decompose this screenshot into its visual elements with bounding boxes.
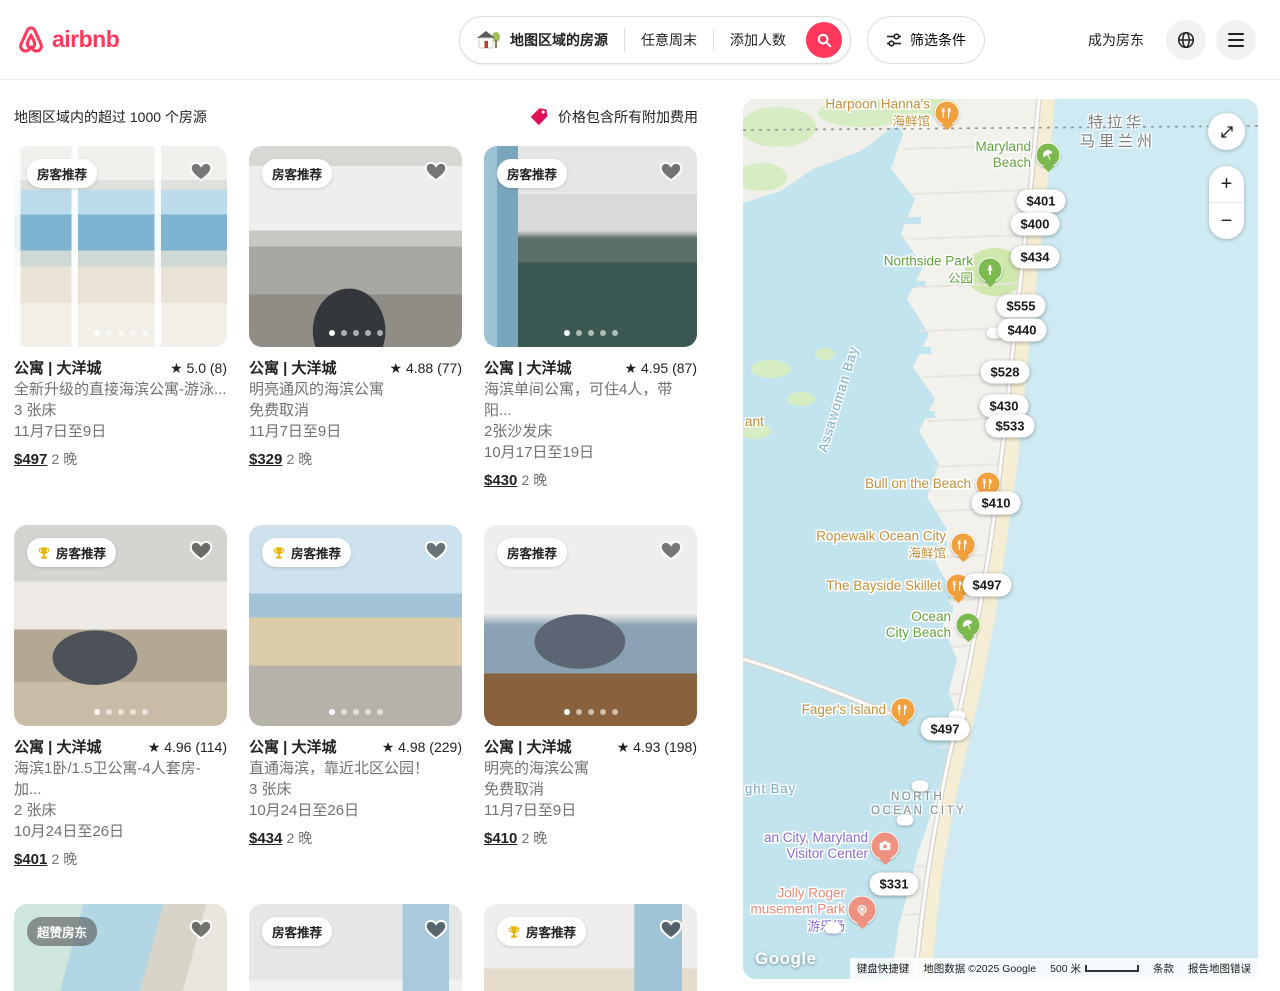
magnifier-icon — [817, 33, 832, 48]
listing-title: 公寓 | 大洋城 — [484, 358, 572, 379]
map-panel[interactable]: 特拉华马里兰州Assawoman Bayantght BayNORTHOCEAN… — [743, 99, 1258, 979]
map-poi-label: Bull on the Beach — [865, 476, 971, 492]
map-price-pin[interactable]: $497 — [921, 718, 970, 741]
listing-price: $430 2 晚 — [484, 470, 697, 491]
listing-description: 明亮的海滨公寓 — [484, 758, 697, 779]
listing-rating: ★ 4.93 (198) — [617, 737, 697, 758]
listing-card[interactable]: 房客推荐公寓 | 大洋城★ 4.93 (198)明亮的海滨公寓免费取消11月7日… — [484, 525, 697, 870]
heart-icon — [658, 916, 684, 942]
google-logo: Google — [755, 949, 817, 969]
search-dates-segment[interactable]: 任意周末 — [625, 30, 713, 50]
filters-button[interactable]: 筛选条件 — [867, 16, 985, 64]
heart-icon — [188, 158, 214, 184]
hamburger-icon — [1228, 33, 1244, 47]
top-nav: airbnb 地图区域的房源 任意周末 添加人数 — [0, 0, 1280, 80]
heart-icon — [658, 537, 684, 563]
restaurant-icon — [956, 538, 971, 553]
listing-meta: 公寓 | 大洋城★ 5.0 (8)全新升级的直接海滨公寓-游泳...3 张床11… — [14, 347, 227, 470]
guest-favorite-badge: 房客推荐 — [497, 917, 586, 946]
listing-photo[interactable]: 房客推荐 — [484, 146, 697, 347]
heart-icon — [423, 916, 449, 942]
map-poi-sublabel: 海鲜馆 — [825, 114, 930, 130]
superhost-badge: 超赞房东 — [27, 917, 97, 946]
wishlist-heart-button[interactable] — [421, 157, 451, 187]
listing-meta: 公寓 | 大洋城★ 4.98 (229)直通海滨，靠近北区公园！3 张床10月2… — [249, 726, 462, 849]
wishlist-heart-button[interactable] — [186, 536, 216, 566]
search-bar[interactable]: 地图区域的房源 任意周末 添加人数 — [459, 16, 851, 64]
expand-icon — [1219, 124, 1235, 140]
listing-description: 全新升级的直接海滨公寓-游泳... — [14, 379, 227, 400]
cards-grid: 房客推荐公寓 | 大洋城★ 5.0 (8)全新升级的直接海滨公寓-游泳...3 … — [14, 146, 698, 991]
listing-beds: 3 张床 — [14, 400, 227, 421]
map-expand-button[interactable] — [1208, 113, 1245, 150]
listing-title: 公寓 | 大洋城 — [14, 358, 102, 379]
map-poi-ferris-marker[interactable] — [848, 896, 877, 925]
map-data-credit: 地图数据 ©2025 Google — [916, 958, 1043, 979]
search-guests-segment[interactable]: 添加人数 — [714, 30, 802, 50]
listing-dates: 11月7日至9日 — [484, 800, 697, 821]
map-poi-label: Fager's Island — [802, 702, 886, 718]
listing-photo[interactable]: 房客推荐 — [249, 904, 462, 991]
heart-icon — [423, 537, 449, 563]
map-poi-beach-marker[interactable] — [956, 613, 981, 638]
price-note: 价格包含所有附加费用 — [528, 106, 698, 128]
listing-photo[interactable]: 房客推荐 — [484, 525, 697, 726]
map-price-pin[interactable]: $331 — [870, 873, 919, 896]
listing-rating: ★ 4.98 (229) — [382, 737, 462, 758]
tree-icon — [983, 263, 998, 278]
listing-photo[interactable]: 房客推荐 — [249, 146, 462, 347]
map-attribution: 键盘快捷键 地图数据 ©2025 Google 500 米 条款 报告地图错误 — [850, 958, 1258, 979]
scale-bar — [1085, 965, 1139, 972]
user-menu-button[interactable] — [1216, 20, 1256, 60]
listings-panel: 房客推荐公寓 | 大洋城★ 5.0 (8)全新升级的直接海滨公寓-游泳...3 … — [0, 146, 698, 991]
airbnb-logo[interactable]: airbnb — [14, 23, 119, 57]
listing-beds: 免费取消 — [484, 779, 697, 800]
listing-photo[interactable]: 房客推荐 — [14, 146, 227, 347]
map-scale: 500 米 — [1043, 958, 1146, 979]
map-price-pin[interactable]: $410 — [972, 492, 1021, 515]
listing-card[interactable]: 超赞房东 — [14, 904, 227, 991]
guest-favorite-badge: 房客推荐 — [27, 538, 116, 567]
listing-price: $434 2 晚 — [249, 828, 462, 849]
listing-card[interactable]: 房客推荐公寓 | 大洋城★ 4.95 (87)海滨单间公寓，可住4人，带阳...… — [484, 146, 697, 491]
map-poi-label: Harpoon Hanna's海鲜馆 — [825, 99, 930, 130]
listing-dates: 11月7日至9日 — [249, 421, 462, 442]
wishlist-heart-button[interactable] — [656, 157, 686, 187]
map-price-pin[interactable]: $497 — [963, 574, 1012, 597]
listing-rating: ★ 4.96 (114) — [148, 737, 227, 758]
zoom-in-button[interactable]: + — [1209, 166, 1244, 202]
map-text-label: OCEAN CITY — [871, 805, 966, 817]
terms-link[interactable]: 条款 — [1146, 958, 1181, 979]
globe-icon — [1177, 31, 1195, 49]
listing-beds: 3 张床 — [249, 779, 462, 800]
map-poi-label: Northside Park公园 — [884, 254, 973, 287]
map-text-label: ant — [745, 414, 764, 429]
listing-price: $497 2 晚 — [14, 449, 227, 470]
star-icon: ★ — [170, 360, 183, 376]
sliders-icon — [886, 32, 902, 48]
listing-title: 公寓 | 大洋城 — [249, 358, 337, 379]
listing-dates: 10月24日至26日 — [14, 821, 227, 842]
listing-description: 明亮通风的海滨公寓 — [249, 379, 462, 400]
beach-umbrella-icon — [1041, 148, 1056, 163]
map-price-pin[interactable]: $434 — [1011, 246, 1060, 269]
restaurant-icon — [896, 703, 911, 718]
guest-favorite-badge: 房客推荐 — [262, 538, 351, 567]
listing-description: 海滨1卧/1.5卫公寓-4人套房-加... — [14, 758, 227, 800]
map-poi-park-marker[interactable] — [978, 258, 1003, 283]
guest-favorite-badge: 房客推荐 — [262, 159, 332, 188]
star-icon: ★ — [625, 360, 638, 376]
listing-dates: 10月24日至26日 — [249, 800, 462, 821]
photo-carousel-dots[interactable] — [94, 709, 148, 715]
listing-photo[interactable]: 超赞房东 — [14, 904, 227, 991]
ferris-wheel-icon — [855, 903, 870, 918]
listing-meta: 公寓 | 大洋城★ 4.95 (87)海滨单间公寓，可住4人，带阳...2张沙发… — [484, 347, 697, 491]
photo-carousel-dots[interactable] — [564, 330, 618, 336]
house-icon — [474, 28, 502, 52]
listing-card[interactable]: 房客推荐公寓 | 大洋城★ 4.88 (77)明亮通风的海滨公寓免费取消11月7… — [249, 146, 462, 491]
map-price-pin[interactable]: $400 — [1011, 213, 1060, 236]
listing-meta: 公寓 | 大洋城★ 4.93 (198)明亮的海滨公寓免费取消11月7日至9日$… — [484, 726, 697, 849]
listing-title: 公寓 | 大洋城 — [484, 737, 572, 758]
listing-photo[interactable]: 房客推荐 — [14, 525, 227, 726]
listing-description: 海滨单间公寓，可住4人，带阳... — [484, 379, 697, 421]
listing-meta: 公寓 | 大洋城★ 4.88 (77)明亮通风的海滨公寓免费取消11月7日至9日… — [249, 347, 462, 470]
map-price-pin[interactable]: $401 — [1017, 190, 1066, 213]
heart-icon — [188, 537, 214, 563]
map-price-pin[interactable]: $528 — [981, 361, 1030, 384]
map-poi-sublabel: 公园 — [884, 271, 973, 287]
wishlist-heart-button[interactable] — [656, 915, 686, 945]
photo-carousel-dots[interactable] — [329, 330, 383, 336]
wishlist-heart-button[interactable] — [421, 915, 451, 945]
map-text-label: 马里兰州 — [1080, 130, 1156, 151]
camera-icon — [878, 839, 893, 854]
heart-icon — [423, 158, 449, 184]
zoom-out-button[interactable]: − — [1209, 203, 1244, 239]
listing-description: 直通海滨，靠近北区公园！ — [249, 758, 462, 779]
listing-beds: 2张沙发床 — [484, 421, 697, 442]
listing-beds: 免费取消 — [249, 400, 462, 421]
trophy-icon — [272, 546, 286, 560]
map-cluster-dot[interactable] — [912, 781, 929, 792]
wishlist-heart-button[interactable] — [186, 915, 216, 945]
guest-favorite-badge: 房客推荐 — [27, 159, 97, 188]
listing-card[interactable]: 房客推荐公寓 | 大洋城★ 4.98 (229)直通海滨，靠近北区公园！3 张床… — [249, 525, 462, 870]
map-poi-beach-marker[interactable] — [1036, 143, 1061, 168]
wishlist-heart-button[interactable] — [656, 536, 686, 566]
listing-photo[interactable]: 房客推荐 — [249, 525, 462, 726]
listing-rating: ★ 5.0 (8) — [170, 358, 227, 379]
map-poi-restaurant-marker[interactable] — [935, 101, 960, 126]
search-location-segment[interactable]: 地图区域的房源 — [474, 28, 624, 52]
search-button[interactable] — [806, 22, 842, 58]
map-price-pin[interactable]: $440 — [998, 319, 1047, 342]
airbnb-belo-icon — [14, 23, 48, 57]
photo-carousel-dots[interactable] — [564, 709, 618, 715]
listing-price: $401 2 晚 — [14, 849, 227, 870]
star-icon: ★ — [382, 739, 395, 755]
listing-price: $410 2 晚 — [484, 828, 697, 849]
map-poi-restaurant-marker[interactable] — [891, 698, 916, 723]
listing-title: 公寓 | 大洋城 — [249, 737, 337, 758]
keyboard-shortcuts-link[interactable]: 键盘快捷键 — [850, 958, 917, 979]
photo-carousel-dots[interactable] — [329, 709, 383, 715]
photo-carousel-dots[interactable] — [94, 330, 148, 336]
map-poi-sublabel: 海鲜馆 — [816, 546, 946, 562]
listing-meta: 公寓 | 大洋城★ 4.96 (114)海滨1卧/1.5卫公寓-4人套房-加..… — [14, 726, 227, 870]
listing-dates: 10月17日至19日 — [484, 442, 697, 463]
map-text-label: NORTH — [891, 791, 944, 803]
guest-favorite-badge: 房客推荐 — [497, 538, 567, 567]
heart-icon — [658, 158, 684, 184]
listing-dates: 11月7日至9日 — [14, 421, 227, 442]
map-poi-label: Ropewalk Ocean City海鲜馆 — [816, 529, 946, 562]
wishlist-heart-button[interactable] — [421, 536, 451, 566]
language-globe-button[interactable] — [1166, 20, 1206, 60]
map-price-pin[interactable]: $555 — [997, 295, 1046, 318]
map-price-pin[interactable]: $533 — [986, 415, 1035, 438]
listing-card[interactable]: 房客推荐公寓 | 大洋城★ 4.96 (114)海滨1卧/1.5卫公寓-4人套房… — [14, 525, 227, 870]
listing-rating: ★ 4.88 (77) — [390, 358, 463, 379]
star-icon: ★ — [390, 360, 403, 376]
map-poi-label: an City, Maryland Visitor Center — [764, 830, 868, 862]
listing-card[interactable]: 房客推荐 — [484, 904, 697, 991]
restaurant-icon — [981, 477, 996, 492]
star-icon: ★ — [148, 739, 161, 755]
trophy-icon — [507, 925, 521, 939]
listing-photo[interactable]: 房客推荐 — [484, 904, 697, 991]
guest-favorite-badge: 房客推荐 — [497, 159, 567, 188]
trophy-icon — [37, 546, 51, 560]
heart-icon — [188, 916, 214, 942]
map-poi-restaurant-marker[interactable] — [951, 533, 976, 558]
map-poi-label: Ocean City Beach — [886, 609, 951, 641]
listing-beds: 2 张床 — [14, 800, 227, 821]
map-cluster-dot[interactable] — [897, 815, 914, 826]
report-map-error-link[interactable]: 报告地图错误 — [1181, 958, 1258, 979]
results-bar: 地图区域内的超过 1000 个房源 价格包含所有附加费用 — [0, 80, 698, 146]
listing-title: 公寓 | 大洋城 — [14, 737, 102, 758]
wishlist-heart-button[interactable] — [186, 157, 216, 187]
map-poi-label: The Bayside Skillet — [826, 578, 941, 594]
map-text-label: ght Bay — [745, 781, 796, 796]
beach-umbrella-icon — [961, 618, 976, 633]
listing-card[interactable]: 房客推荐 — [249, 904, 462, 991]
restaurant-icon — [940, 106, 955, 121]
map-poi-label: Maryland Beach — [975, 139, 1031, 171]
guest-favorite-badge: 房客推荐 — [262, 917, 332, 946]
listing-rating: ★ 4.95 (87) — [625, 358, 698, 379]
map-poi-camera-marker[interactable] — [871, 832, 900, 861]
listing-card[interactable]: 房客推荐公寓 | 大洋城★ 5.0 (8)全新升级的直接海滨公寓-游泳...3 … — [14, 146, 227, 491]
star-icon: ★ — [617, 739, 630, 755]
map-text-label: 特拉华 — [1088, 111, 1145, 132]
results-count: 地图区域内的超过 1000 个房源 — [14, 107, 207, 127]
listing-price: $329 2 晚 — [249, 449, 462, 470]
become-host-link[interactable]: 成为房东 — [1076, 20, 1156, 60]
map-zoom-control: + − — [1209, 166, 1244, 239]
map-cluster-dot[interactable] — [825, 923, 842, 934]
price-tag-icon — [528, 106, 550, 128]
logo-wordmark: airbnb — [52, 26, 119, 53]
